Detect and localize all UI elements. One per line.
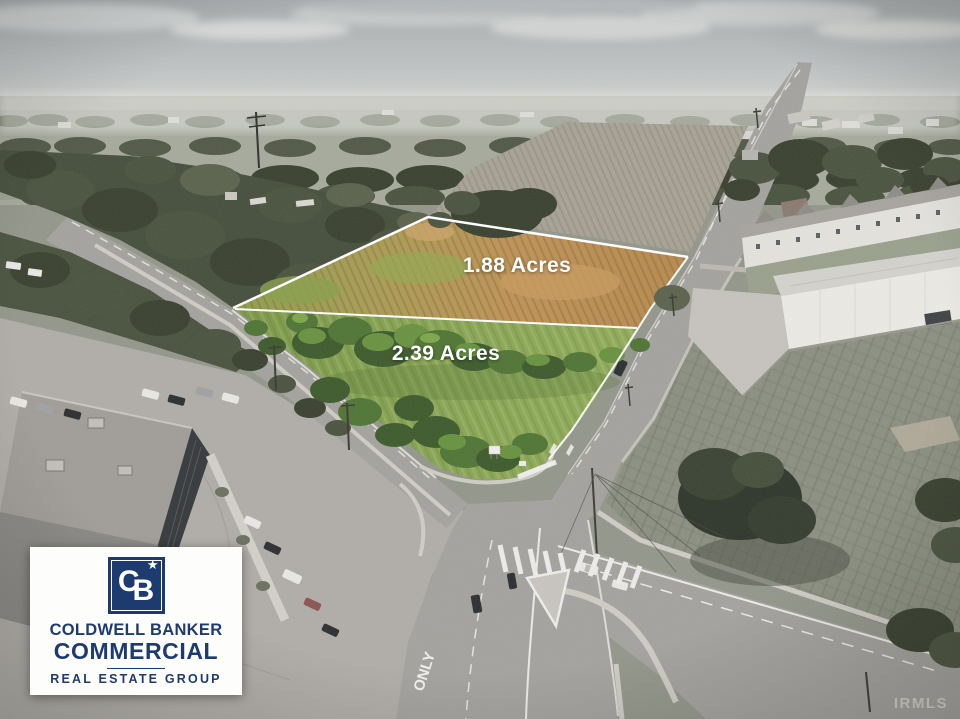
star-icon: ★ bbox=[147, 558, 159, 571]
parcel-north-acreage-label: 1.88 Acres bbox=[463, 254, 571, 278]
logo-group-name: REAL ESTATE GROUP bbox=[50, 672, 221, 686]
cb-monogram-icon: C B ★ bbox=[108, 557, 165, 614]
parcel-south-acreage-label: 2.39 Acres bbox=[392, 342, 500, 366]
logo-division-name: COMMERCIAL bbox=[54, 638, 218, 665]
logo-divider bbox=[107, 668, 165, 669]
aerial-photo: ONLY IRMLS 1.88 Acres 2.39 Acres C B ★ C… bbox=[0, 0, 960, 719]
coldwell-banker-logo-card: C B ★ COLDWELL BANKER COMMERCIAL REAL ES… bbox=[30, 547, 242, 695]
cb-letter-b: B bbox=[133, 574, 155, 608]
